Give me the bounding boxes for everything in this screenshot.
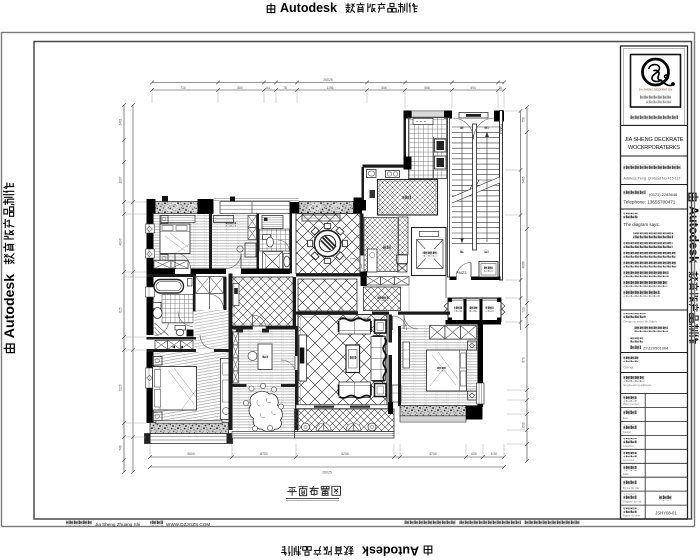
- svg-text:1196: 1196: [327, 86, 334, 90]
- svg-text:1007: 1007: [119, 176, 123, 183]
- svg-text:6.50: 6.50: [491, 452, 498, 456]
- svg-text:FMZ3: FMZ3: [456, 270, 467, 275]
- svg-text:Design to enter Mr.Super.: Design to enter Mr.Super.: [624, 320, 658, 324]
- svg-text:JIA SHENG DECKRATE: JIA SHENG DECKRATE: [625, 137, 684, 143]
- svg-text:Diagram do not.: Diagram do not.: [623, 500, 642, 504]
- svg-text:7223: 7223: [119, 384, 123, 391]
- svg-text:JIA SHENG DECKRAT ON: JIA SHENG DECKRAT ON: [639, 88, 672, 92]
- svg-text:456: 456: [381, 86, 387, 90]
- svg-text:Date.: Date.: [623, 472, 630, 476]
- svg-text:580: 580: [237, 86, 243, 90]
- svg-text:WWW.QZJGZS.COM: WWW.QZJGZS.COM: [166, 522, 210, 527]
- svg-text:8750: 8750: [260, 452, 268, 456]
- svg-text:(0371) 2283648: (0371) 2283648: [649, 192, 678, 197]
- svg-text:650: 650: [471, 452, 477, 456]
- svg-text:Owner.: Owner.: [624, 366, 635, 370]
- svg-text:Address:Feng. Qi Road No.415-1: Address:Feng. Qi Road No.415-117: [624, 177, 681, 181]
- svg-text:4093: 4093: [119, 238, 123, 245]
- svg-text:Item.: Item.: [623, 416, 629, 420]
- svg-text:Jia Sheng Zhuang Shi: Jia Sheng Zhuang Shi: [95, 522, 140, 527]
- svg-text:5250: 5250: [341, 452, 349, 456]
- svg-text:Engineering address.: Engineering address.: [624, 383, 653, 387]
- svg-text:The diagram says:: The diagram says:: [624, 222, 660, 227]
- svg-text:FMZ3: FMZ3: [499, 124, 504, 135]
- svg-text:600: 600: [522, 422, 526, 428]
- svg-text:750: 750: [522, 117, 526, 123]
- svg-text:WOCKRPORATERKS: WOCKRPORATERKS: [628, 145, 680, 151]
- svg-text:Figure number.: Figure number.: [623, 514, 641, 518]
- svg-text:78: 78: [498, 86, 502, 90]
- svg-text:By the fig. Na.: By the fig. Na.: [623, 486, 640, 490]
- svg-text:3600: 3600: [187, 452, 195, 456]
- svg-text:4088: 4088: [522, 261, 526, 268]
- svg-text:26025: 26025: [323, 78, 333, 82]
- svg-text:4750: 4750: [429, 452, 437, 456]
- svg-text:5465: 5465: [522, 176, 526, 183]
- svg-text:556: 556: [424, 86, 430, 90]
- svg-text:740: 740: [119, 445, 123, 451]
- svg-text:78: 78: [283, 86, 287, 90]
- svg-text:625: 625: [119, 307, 123, 313]
- svg-text:26025: 26025: [322, 471, 332, 475]
- svg-text:2401: 2401: [119, 118, 123, 125]
- svg-text:54: 54: [266, 86, 270, 90]
- svg-text:JSHY08-01: JSHY08-01: [655, 511, 677, 516]
- svg-text:720: 720: [522, 307, 526, 313]
- svg-text:Design.: Design.: [623, 430, 632, 434]
- svg-text:710: 710: [180, 86, 186, 90]
- svg-text:594: 594: [470, 86, 476, 90]
- svg-text:870: 870: [522, 357, 526, 363]
- svg-text:Approved.: Approved.: [623, 458, 636, 462]
- svg-text:Plate number.: Plate number.: [623, 402, 640, 406]
- svg-text:Graphics.: Graphics.: [623, 444, 635, 448]
- svg-text:ZYZ20501904: ZYZ20501904: [643, 345, 669, 350]
- svg-text:Telephone: 13655700471: Telephone: 13655700471: [624, 199, 676, 204]
